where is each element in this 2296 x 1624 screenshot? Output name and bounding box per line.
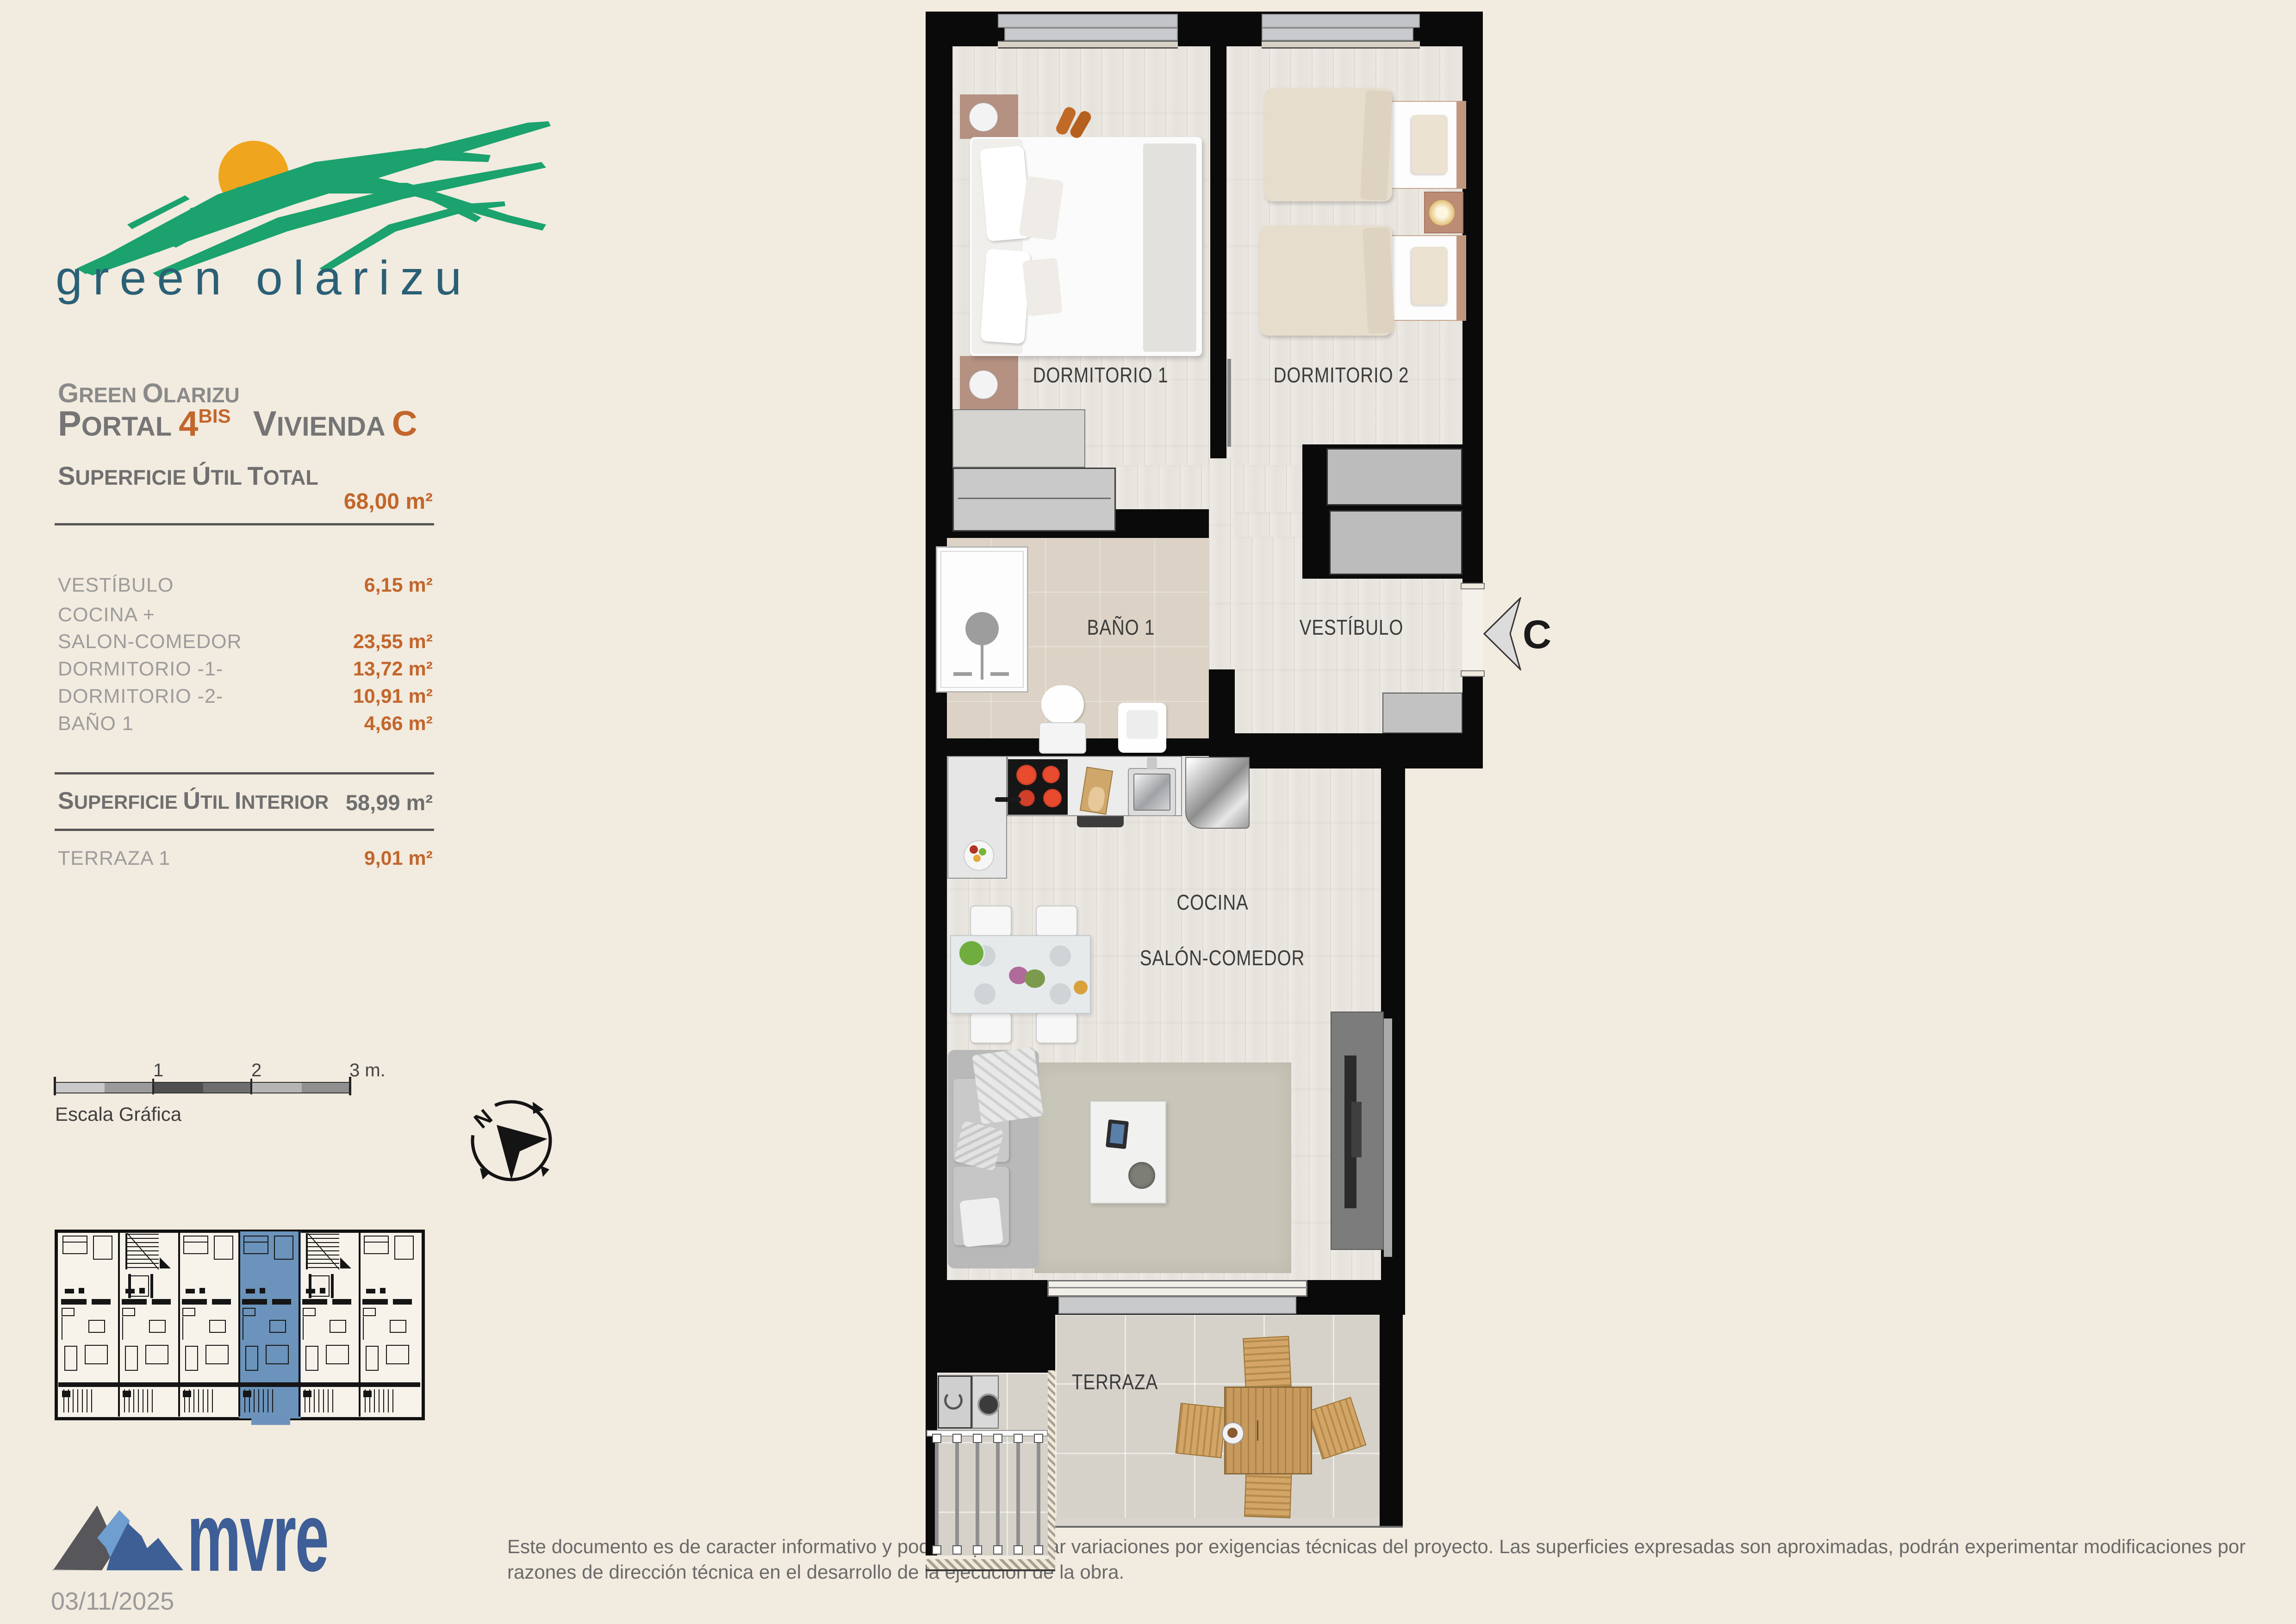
svg-text:N: N xyxy=(469,1104,497,1133)
svg-text:green olarizu: green olarizu xyxy=(56,251,472,305)
